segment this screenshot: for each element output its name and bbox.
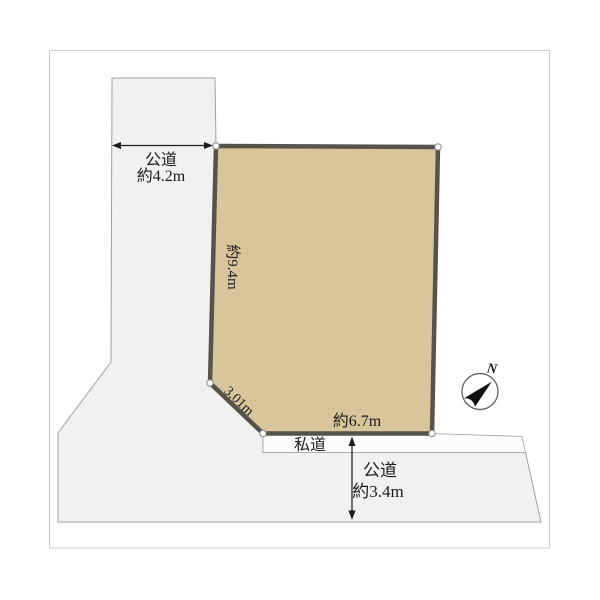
- label-left-road-name: 公道: [145, 151, 177, 169]
- corner-marker-bottom-right: [429, 430, 435, 436]
- label-bottom-road-width: 約3.4m: [352, 482, 403, 501]
- plot-polygon: [210, 146, 438, 434]
- corner-marker-bottom-left: [260, 430, 266, 436]
- land-plot-diagram: 公道 約4.2m 約9.4m 3.01m 約6.7m 私道 公道 約3.4m N: [0, 0, 600, 600]
- corner-marker-diagonal-top: [207, 380, 213, 386]
- corner-marker-top-left: [213, 143, 219, 149]
- label-bottom-road-name: 公道: [363, 461, 397, 480]
- label-bottom-edge-length: 約6.7m: [333, 412, 382, 430]
- corner-marker-top-right: [435, 144, 441, 150]
- label-left-edge-length: 約9.4m: [224, 244, 241, 290]
- label-left-road-width: 約4.2m: [137, 167, 186, 185]
- label-private-road: 私道: [294, 436, 326, 454]
